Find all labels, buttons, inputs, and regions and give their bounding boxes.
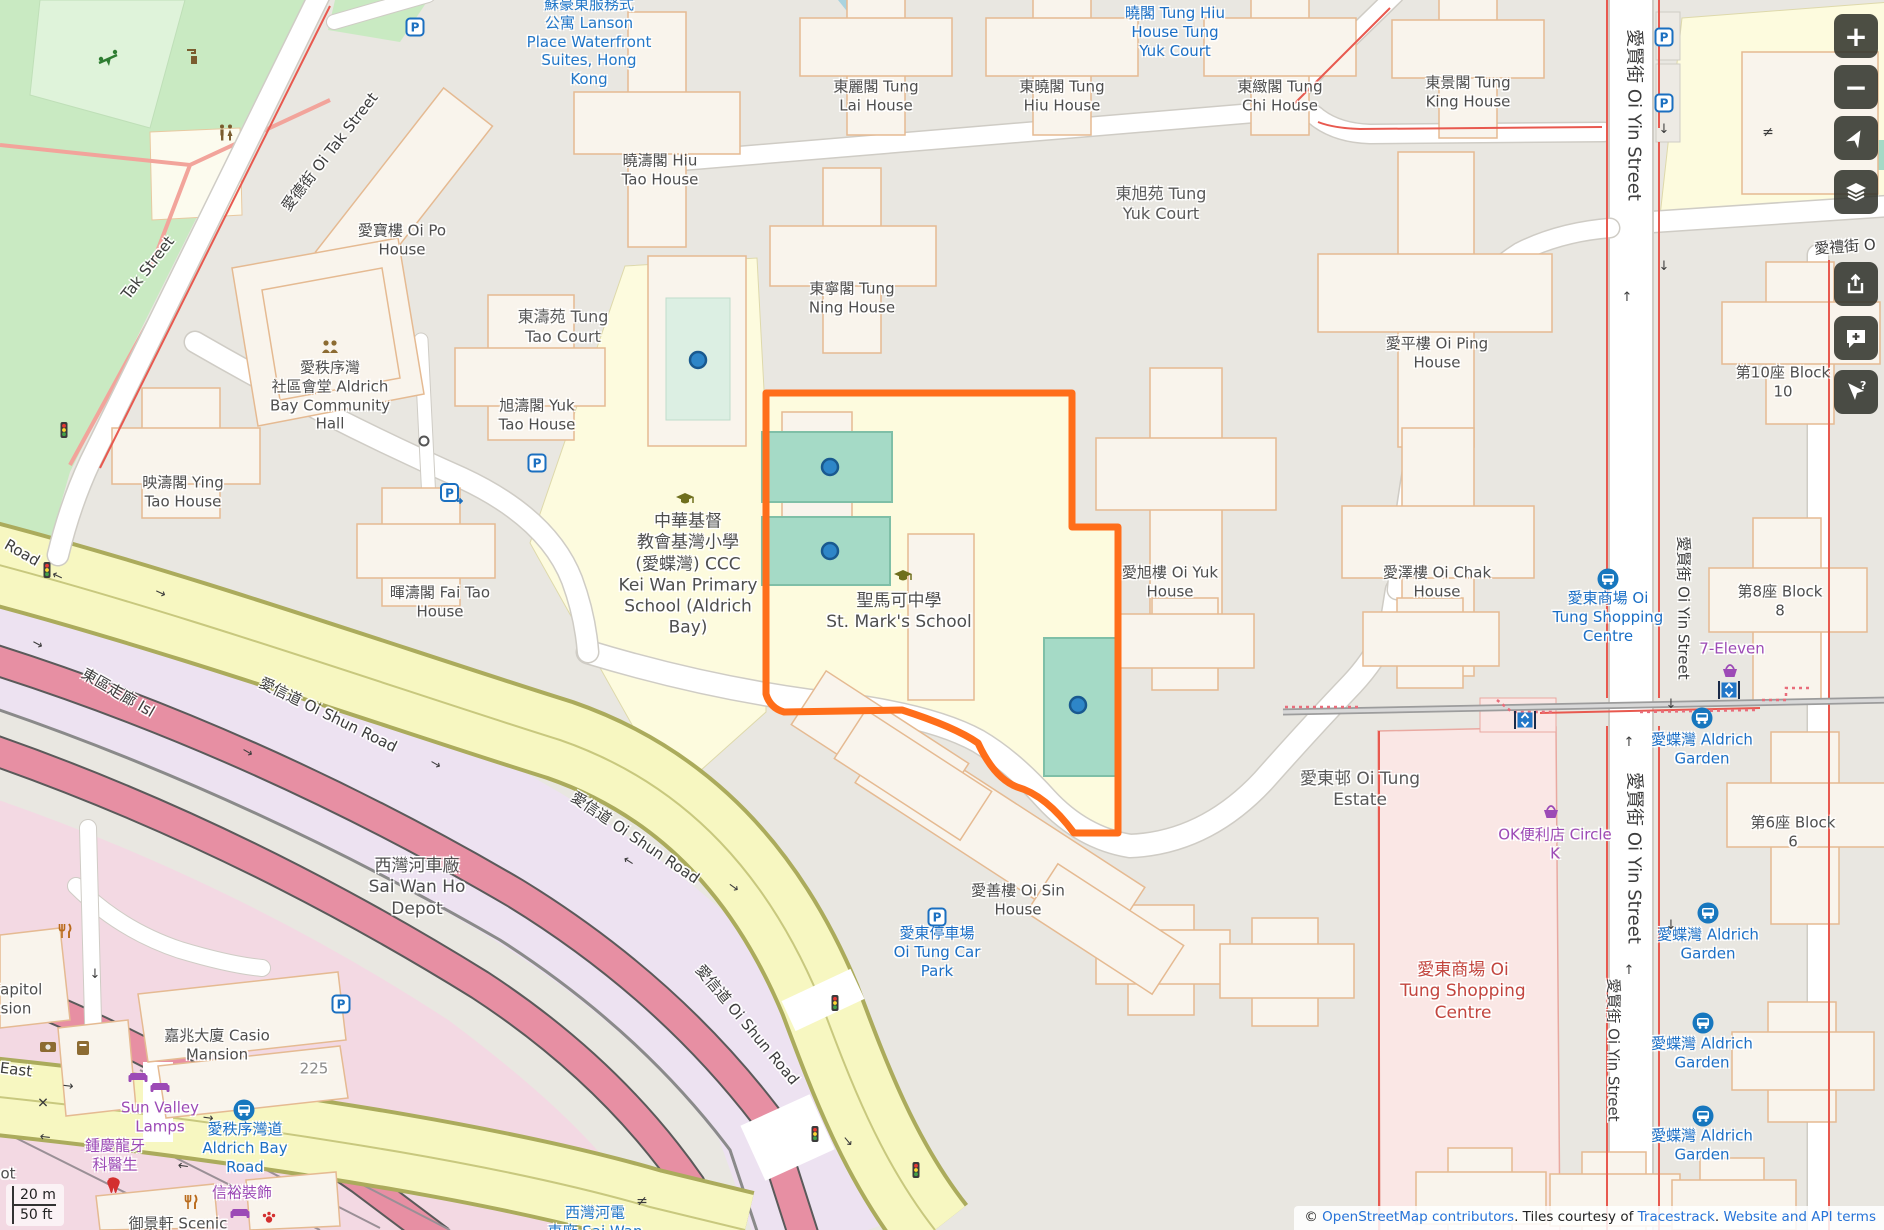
locate-button[interactable] bbox=[1834, 116, 1878, 160]
attribution-prefix: © bbox=[1304, 1209, 1322, 1225]
zoom-out-button[interactable]: − bbox=[1834, 65, 1878, 109]
layers-button[interactable] bbox=[1834, 170, 1878, 214]
sports-court bbox=[762, 432, 892, 502]
query-features-button[interactable]: ? bbox=[1834, 370, 1878, 414]
sports-court bbox=[762, 517, 890, 585]
tracestrack-link[interactable]: Tracestrack bbox=[1638, 1209, 1715, 1225]
zoom-in-button[interactable]: + bbox=[1834, 14, 1878, 58]
terms-link[interactable]: Website and API terms bbox=[1723, 1209, 1876, 1225]
svg-text:?: ? bbox=[1860, 380, 1866, 392]
add-note-button[interactable] bbox=[1834, 316, 1878, 360]
plus-icon: + bbox=[1844, 20, 1867, 53]
sports-court bbox=[1044, 638, 1116, 776]
scale-bar: 20 m 50 ft bbox=[6, 1184, 64, 1226]
navigate-arrow-icon bbox=[1845, 127, 1867, 149]
map-canvas bbox=[0, 0, 1884, 1230]
mall-annex bbox=[1480, 698, 1556, 732]
map-controls: + − ? bbox=[1834, 14, 1880, 421]
share-button[interactable] bbox=[1834, 262, 1878, 306]
map-viewport[interactable]: 蘇豪東服務式公寓 LansonPlace WaterfrontSuites, H… bbox=[0, 0, 1884, 1230]
share-icon bbox=[1845, 273, 1867, 295]
attribution-mid: . Tiles courtesy of bbox=[1514, 1209, 1638, 1225]
layers-icon bbox=[1844, 180, 1868, 204]
osm-contributors-link[interactable]: OpenStreetMap contributors bbox=[1322, 1209, 1514, 1225]
query-arrow-icon: ? bbox=[1844, 380, 1868, 404]
attribution-bar: © OpenStreetMap contributors. Tiles cour… bbox=[1294, 1206, 1884, 1230]
minus-icon: − bbox=[1844, 71, 1867, 104]
scale-imperial: 50 ft bbox=[12, 1206, 56, 1224]
scale-metric: 20 m bbox=[12, 1186, 56, 1206]
comment-plus-icon bbox=[1844, 326, 1868, 350]
